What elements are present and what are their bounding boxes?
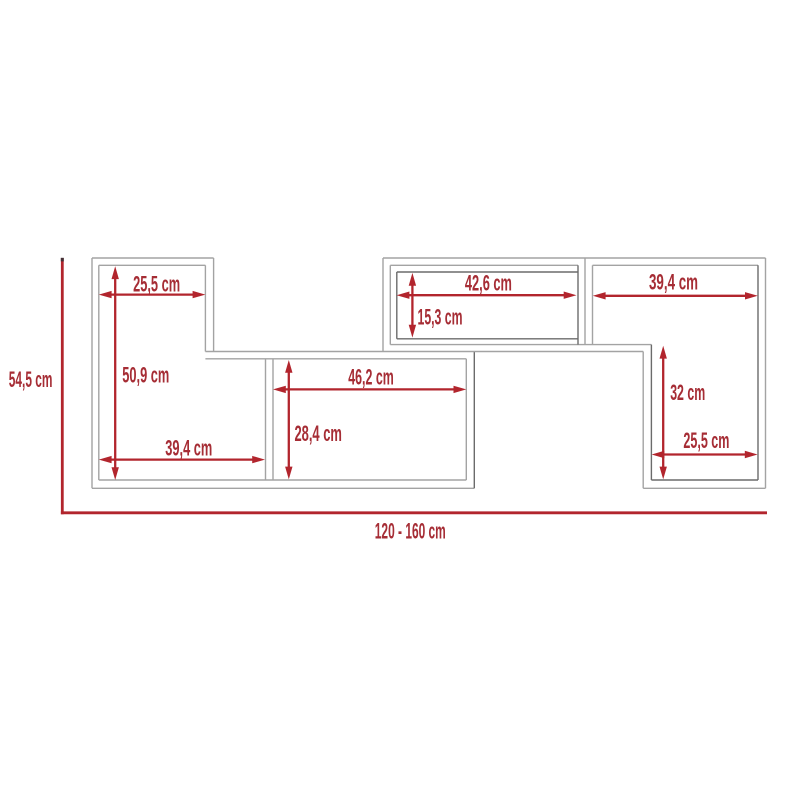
svg-text:28,4 cm: 28,4 cm bbox=[294, 421, 342, 446]
svg-text:39,4 cm: 39,4 cm bbox=[649, 270, 698, 295]
svg-text:50,9 cm: 50,9 cm bbox=[122, 362, 169, 387]
svg-text:25,5 cm: 25,5 cm bbox=[133, 272, 180, 297]
svg-text:46,2 cm: 46,2 cm bbox=[348, 365, 394, 390]
svg-text:120 - 160 cm: 120 - 160 cm bbox=[375, 519, 446, 544]
svg-text:15,3 cm: 15,3 cm bbox=[418, 304, 463, 329]
svg-text:42,6 cm: 42,6 cm bbox=[465, 270, 512, 295]
svg-text:54,5 cm: 54,5 cm bbox=[9, 367, 53, 392]
svg-text:32 cm: 32 cm bbox=[670, 380, 705, 405]
svg-text:39,4 cm: 39,4 cm bbox=[165, 435, 212, 460]
svg-text:25,5 cm: 25,5 cm bbox=[683, 428, 729, 453]
